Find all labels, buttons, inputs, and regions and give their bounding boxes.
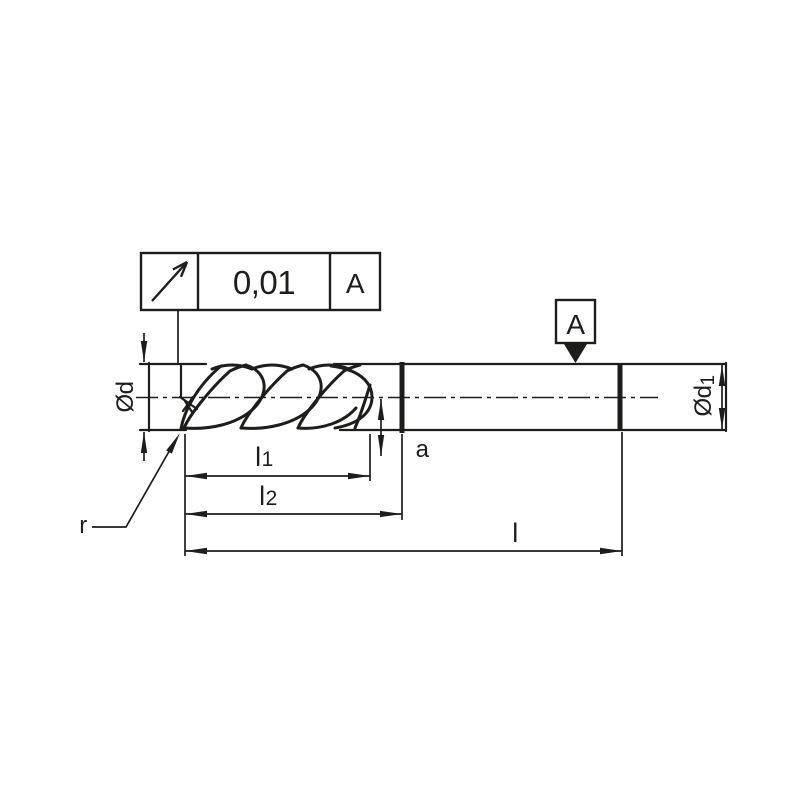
arrowhead-left-icon — [185, 548, 207, 554]
datum-feature-symbol: A — [556, 300, 595, 363]
arrowhead-left-icon — [185, 511, 207, 517]
dimension-shank-diameter: Ød1 — [690, 365, 725, 429]
corner-radius-label: r — [79, 512, 87, 539]
arrowhead-right-icon — [348, 473, 370, 479]
corner-radius-leader: r — [79, 433, 180, 539]
circular-runout-arrow-icon — [152, 262, 187, 301]
arrowhead-down-icon — [141, 341, 147, 362]
arrowhead-up-icon — [378, 399, 384, 420]
end-teeth-gash-lines — [180, 366, 197, 412]
tolerance-datum-ref: A — [346, 268, 365, 299]
datum-triangle-icon — [564, 344, 587, 363]
dimension-overall-length-l: l — [185, 518, 622, 554]
cut-diameter-label: Ød — [112, 381, 139, 412]
overall-length-label: l — [512, 518, 518, 548]
technical-drawing-canvas: 0,01 A A — [0, 0, 800, 800]
arrowhead-down-icon — [378, 435, 384, 456]
arrowhead-up-icon — [719, 365, 725, 386]
arrowhead-up-icon — [141, 432, 147, 453]
neck-length-label: l2 — [259, 481, 277, 511]
datum-label: A — [566, 309, 585, 340]
end-offset-label: a — [416, 436, 430, 463]
runout-tolerance-frame: 0,01 A — [141, 253, 380, 363]
shank-diameter-label: Ød1 — [690, 375, 719, 416]
arrowhead-right-icon — [600, 548, 622, 554]
leader-arrowhead-icon — [166, 433, 180, 454]
arrowhead-down-icon — [719, 408, 725, 429]
drawing-page: 0,01 A A — [0, 0, 800, 800]
tolerance-value: 0,01 — [233, 264, 295, 301]
dimension-neck-length-l2: l2 — [185, 481, 402, 517]
dimension-flute-length-l1: l1 — [185, 442, 370, 479]
arrowhead-right-icon — [380, 511, 402, 517]
flute-length-label: l1 — [255, 442, 273, 472]
arrowhead-left-icon — [185, 473, 207, 479]
